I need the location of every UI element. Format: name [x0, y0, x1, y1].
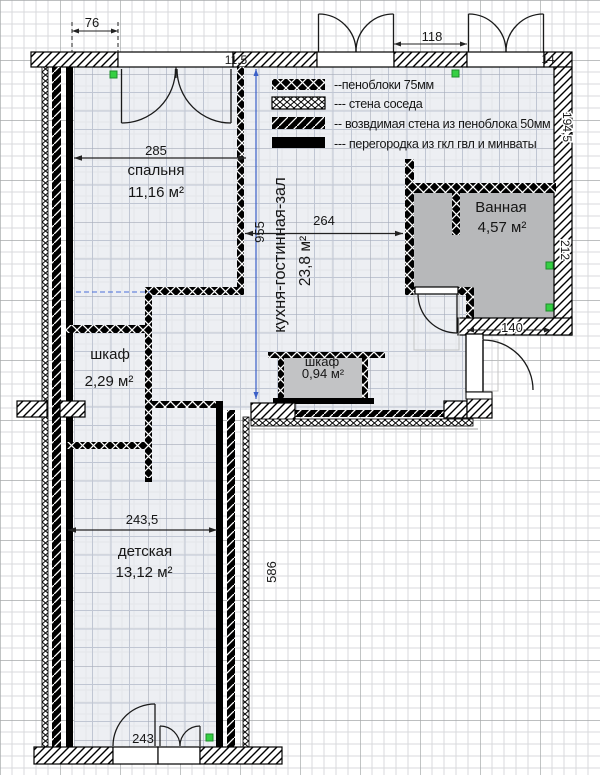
svg-text:23,8 м²: 23,8 м² [297, 236, 314, 286]
svg-text:11,5: 11,5 [225, 53, 248, 67]
svg-text:детская: детская [118, 543, 172, 560]
svg-text:спальня: спальня [128, 162, 185, 179]
svg-text:264: 264 [313, 213, 335, 228]
svg-text:--- перегородка из гкл гвл и: --- перегородка из гкл гвл и минваты [334, 137, 537, 151]
svg-text:13,12 м²: 13,12 м² [115, 564, 172, 581]
svg-text:14: 14 [541, 52, 555, 66]
svg-text:194,5: 194,5 [560, 112, 574, 142]
svg-text:-- возвдимая стена из пеноблок: -- возвдимая стена из пеноблока 50мм [334, 117, 550, 131]
svg-text:76: 76 [85, 15, 99, 30]
svg-text:--пеноблоки 75мм: --пеноблоки 75мм [334, 78, 434, 92]
svg-text:586: 586 [264, 561, 279, 583]
svg-text:4,57 м²: 4,57 м² [478, 219, 527, 236]
svg-text:Ванная: Ванная [475, 199, 526, 216]
svg-text:140: 140 [501, 320, 523, 335]
svg-text:шкаф: шкаф [90, 346, 130, 363]
svg-text:118: 118 [422, 29, 443, 44]
svg-text:--- стена соседа: --- стена соседа [334, 97, 423, 111]
svg-text:0,94 м²: 0,94 м² [302, 366, 345, 381]
svg-text:212: 212 [558, 240, 572, 260]
svg-text:2,29 м²: 2,29 м² [85, 373, 134, 390]
svg-text:11,16 м²: 11,16 м² [128, 184, 184, 201]
svg-text:955: 955 [252, 221, 267, 243]
svg-text:кухня-гостинная-зал: кухня-гостинная-зал [271, 177, 289, 333]
svg-text:285: 285 [145, 143, 167, 158]
svg-text:243: 243 [132, 731, 154, 746]
svg-text:243,5: 243,5 [126, 512, 159, 527]
